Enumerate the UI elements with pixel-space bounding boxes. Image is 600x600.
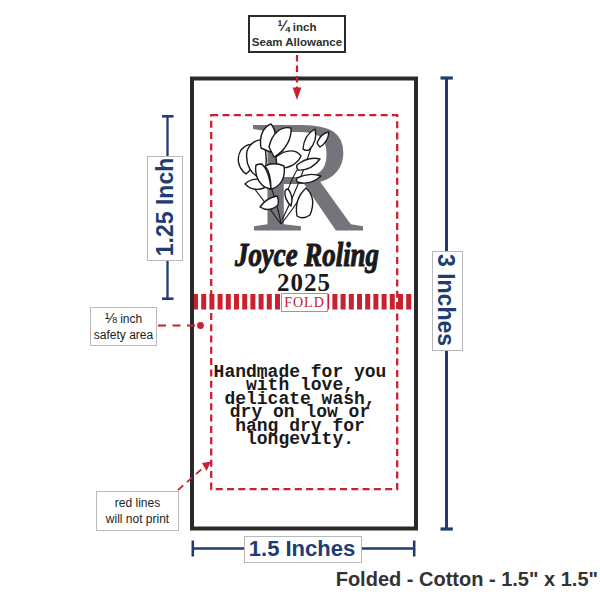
- svg-text:Joyce Roling: Joyce Roling: [234, 236, 379, 273]
